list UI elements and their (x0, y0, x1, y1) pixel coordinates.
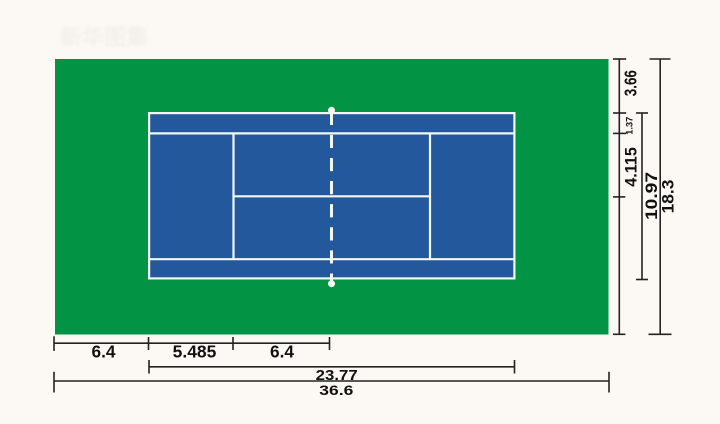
svg-text:4.115: 4.115 (622, 147, 641, 187)
svg-text:6.4: 6.4 (270, 341, 294, 361)
svg-text:新华图集: 新华图集 (60, 25, 149, 50)
svg-text:18.3: 18.3 (659, 180, 678, 214)
svg-text:1.37: 1.37 (625, 117, 636, 135)
svg-text:5.485: 5.485 (173, 342, 217, 362)
svg-text:36.6: 36.6 (319, 382, 353, 398)
svg-text:3.66: 3.66 (621, 70, 641, 96)
svg-text:6.4: 6.4 (92, 341, 116, 361)
